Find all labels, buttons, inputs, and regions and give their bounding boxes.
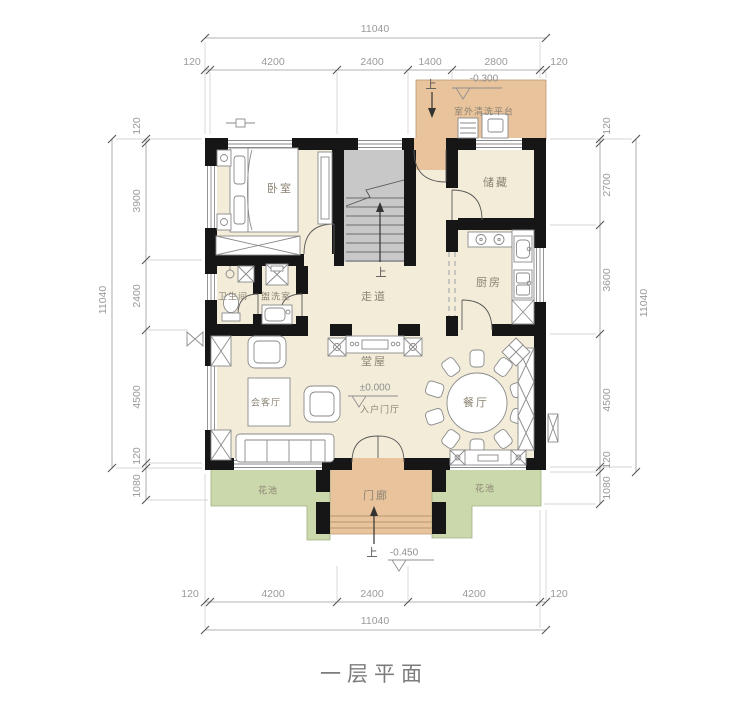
dim-right-seg: 120 bbox=[601, 451, 613, 469]
stairwell bbox=[344, 150, 404, 262]
room-label-storage: 储藏 bbox=[483, 174, 509, 190]
window-kitchen-right bbox=[534, 248, 546, 302]
flower-bed-left bbox=[211, 466, 330, 540]
dim-left-total: 11040 bbox=[97, 286, 109, 314]
dim-top-seg: 4200 bbox=[261, 56, 284, 68]
dim-top-total: 11040 bbox=[361, 23, 389, 35]
flower-bed-right bbox=[432, 466, 541, 538]
room-label-wash-platform: 室外清洗平台 bbox=[454, 105, 514, 118]
wardrobe bbox=[216, 236, 300, 255]
room-label-porch: 门廊 bbox=[363, 487, 389, 503]
room-label-dining: 餐厅 bbox=[463, 394, 489, 410]
dim-right-seg: 3600 bbox=[601, 268, 613, 291]
room-label-living: 会客厅 bbox=[251, 396, 281, 409]
dim-top-seg: 120 bbox=[550, 56, 568, 68]
room-label-bathroom: 卫生间 bbox=[218, 290, 248, 303]
washing-machine bbox=[266, 264, 288, 285]
wash-board bbox=[458, 118, 478, 138]
stove bbox=[468, 232, 512, 247]
dining-sideboard bbox=[450, 450, 526, 465]
dim-bottom-seg: 120 bbox=[181, 588, 199, 600]
dim-left-seg: 4500 bbox=[131, 385, 143, 408]
plan-title: 一层平面 bbox=[320, 658, 428, 688]
dim-left-seg: 3900 bbox=[131, 189, 143, 212]
outdoor-sink bbox=[482, 114, 508, 138]
window-storage-top bbox=[476, 138, 522, 150]
nightstand bbox=[217, 150, 231, 166]
dim-bottom-seg: 2400 bbox=[360, 588, 383, 600]
hall-console bbox=[346, 336, 404, 353]
side-cabinet bbox=[211, 430, 231, 460]
side-cabinet bbox=[211, 336, 231, 366]
bedroom-shelf bbox=[318, 152, 332, 224]
dim-bottom-seg: 4200 bbox=[261, 588, 284, 600]
dim-bottom-total: 11040 bbox=[361, 615, 389, 627]
window-bedroom-left bbox=[205, 166, 217, 228]
washroom-sink bbox=[262, 305, 292, 324]
plant-stand bbox=[404, 338, 422, 356]
plant-stand bbox=[328, 338, 346, 356]
dim-left-seg: 1080 bbox=[131, 474, 143, 497]
elevation-value-foyer: ±0.000 bbox=[360, 383, 391, 394]
dim-left-seg: 120 bbox=[131, 117, 143, 135]
sofa bbox=[236, 434, 334, 462]
porch-wall-stub-left bbox=[316, 470, 330, 492]
room-label-washroom: 盥洗室 bbox=[261, 290, 291, 303]
dining-closet bbox=[518, 348, 534, 450]
floor-drain bbox=[238, 266, 254, 282]
window-bathroom-left bbox=[205, 274, 217, 300]
floor-plan-page: 卧室 储藏 厨房 卫生间 盥洗室 走道 堂屋 会客厅 餐厅 门廊 花池 花池 室… bbox=[0, 0, 748, 706]
room-label-bedroom: 卧室 bbox=[267, 180, 293, 196]
dim-top-seg: 2800 bbox=[484, 56, 507, 68]
elevation-symbol-porch bbox=[388, 560, 434, 571]
dim-bottom-seg: 120 bbox=[550, 588, 568, 600]
room-label-flowerbed-right: 花池 bbox=[475, 482, 495, 495]
porch-up-label: 上 bbox=[367, 544, 378, 560]
dim-left-seg: 2400 bbox=[131, 284, 143, 307]
kitchen-sink-double bbox=[514, 270, 532, 298]
nightstand bbox=[217, 214, 231, 230]
window-stair-top bbox=[358, 138, 402, 150]
dim-top-seg: 2400 bbox=[360, 56, 383, 68]
dim-right-seg: 2700 bbox=[601, 173, 613, 196]
dim-top-seg: 1400 bbox=[418, 56, 441, 68]
ac-unit bbox=[548, 414, 558, 442]
dim-left-seg: 120 bbox=[131, 447, 143, 465]
porch-wall-stub-right bbox=[432, 470, 446, 492]
window-living-left bbox=[205, 366, 217, 430]
fridge bbox=[512, 300, 534, 324]
room-label-hall: 堂屋 bbox=[361, 353, 387, 369]
room-label-flowerbed-left: 花池 bbox=[258, 484, 278, 497]
dim-right-total: 11040 bbox=[638, 289, 650, 317]
porch-column-left bbox=[316, 502, 330, 534]
elevation-value-porch: -0.450 bbox=[390, 548, 418, 559]
elevation-value-platform: -0.300 bbox=[470, 74, 498, 85]
room-label-kitchen: 厨房 bbox=[476, 274, 502, 290]
room-label-foyer: 入户门厅 bbox=[360, 403, 400, 416]
kitchen-sink-single bbox=[514, 236, 532, 262]
armchair bbox=[304, 386, 340, 422]
dim-bottom-seg: 4200 bbox=[462, 588, 485, 600]
armchair bbox=[248, 336, 286, 368]
dim-right-seg: 4500 bbox=[601, 388, 613, 411]
dim-top-seg: 120 bbox=[183, 56, 201, 68]
porch-column-right bbox=[432, 502, 446, 534]
dim-right-seg: 120 bbox=[601, 117, 613, 135]
dim-right-seg: 1080 bbox=[601, 476, 613, 499]
platform-up-label: 上 bbox=[426, 76, 437, 92]
room-label-corridor: 走道 bbox=[361, 288, 387, 304]
stair-up-label: 上 bbox=[376, 264, 387, 280]
